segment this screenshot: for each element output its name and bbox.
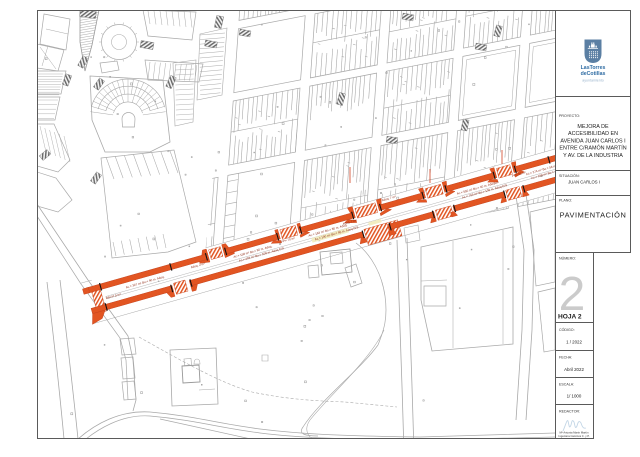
- svg-text:MEJORA DE: MEJORA DE: [577, 124, 609, 130]
- svg-text:PLANO:: PLANO:: [559, 199, 572, 203]
- svg-text:PAVIMENTACIÓN: PAVIMENTACIÓN: [560, 211, 627, 220]
- svg-text:PROYECTO:: PROYECTO:: [559, 114, 580, 118]
- svg-text:1/ 1000: 1/ 1000: [567, 394, 582, 399]
- svg-text:JUAN CARLOS I: JUAN CARLOS I: [568, 180, 600, 185]
- svg-text:CÓDIGO:: CÓDIGO:: [559, 327, 575, 332]
- svg-text:Ingeniera Caminos C. y P.: Ingeniera Caminos C. y P.: [558, 434, 589, 438]
- svg-text:ayuntamiento: ayuntamiento: [582, 79, 604, 83]
- svg-text:Mª Antonia Marín Martín: Mª Antonia Marín Martín: [560, 431, 589, 435]
- svg-text:HOJA 2: HOJA 2: [558, 314, 582, 321]
- svg-text:REDACTOR:: REDACTOR:: [559, 410, 580, 414]
- svg-text:NÚMERO:: NÚMERO:: [559, 256, 576, 261]
- svg-text:AVENIDA JUAN CARLOS I: AVENIDA JUAN CARLOS I: [560, 138, 625, 144]
- svg-text:FECHA:: FECHA:: [559, 356, 572, 360]
- svg-text:Abril 2022: Abril 2022: [564, 367, 584, 372]
- svg-text:LasTorres: LasTorres: [581, 65, 606, 71]
- svg-text:SITUACIÓN:: SITUACIÓN:: [559, 173, 580, 178]
- svg-text:ENTRE C/RAMÓN MARTÍN: ENTRE C/RAMÓN MARTÍN: [559, 145, 626, 152]
- svg-text:deCotillas: deCotillas: [581, 71, 606, 77]
- svg-text:ESCALA:: ESCALA:: [559, 383, 574, 387]
- svg-text:ACCESIBILIDAD EN: ACCESIBILIDAD EN: [568, 131, 618, 137]
- svg-text:1 / 2022: 1 / 2022: [566, 340, 582, 345]
- svg-text:Y AV. DE LA INDUSTRIA: Y AV. DE LA INDUSTRIA: [563, 153, 623, 159]
